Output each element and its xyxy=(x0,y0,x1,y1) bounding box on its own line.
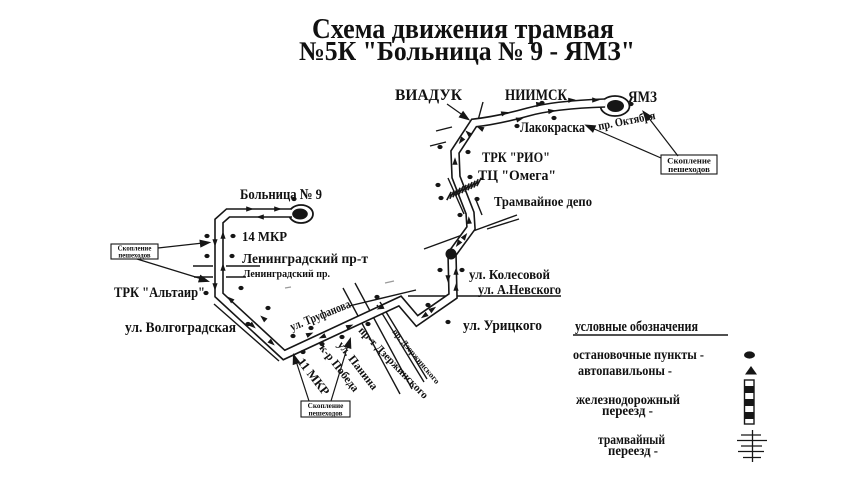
svg-text:пешеходов: пешеходов xyxy=(118,252,151,259)
svg-text:Ленинградский пр-т: Ленинградский пр-т xyxy=(242,252,368,267)
svg-text:условные обозначения: условные обозначения xyxy=(575,319,698,335)
svg-text:остановочные пункты -: остановочные пункты - xyxy=(573,347,704,362)
svg-text:ул. А.Невского: ул. А.Невского xyxy=(478,283,561,298)
svg-text:Ленинградский пр.: Ленинградский пр. xyxy=(243,268,330,280)
svg-text:автопавильоны -: автопавильоны - xyxy=(578,363,672,378)
svg-text:ТЦ "Омега": ТЦ "Омега" xyxy=(478,168,556,184)
svg-text:ЯМЗ: ЯМЗ xyxy=(628,89,657,106)
svg-text:переезд -: переезд - xyxy=(608,443,658,458)
svg-text:пешеходов: пешеходов xyxy=(308,409,342,417)
svg-text:Больница № 9: Больница № 9 xyxy=(240,187,322,203)
svg-text:ул. Урицкого: ул. Урицкого xyxy=(463,318,542,334)
svg-text:ТРК "РИО": ТРК "РИО" xyxy=(482,150,550,166)
svg-text:ул. Волгоградская: ул. Волгоградская xyxy=(125,320,236,336)
svg-text:переезд -: переезд - xyxy=(602,403,653,418)
svg-text:Трамвайное депо: Трамвайное депо xyxy=(494,194,592,209)
svg-text:ул. Колесовой: ул. Колесовой xyxy=(469,268,550,283)
svg-text:ТРК "Альтаир": ТРК "Альтаир" xyxy=(114,285,205,301)
svg-text:Лакокраска: Лакокраска xyxy=(520,120,586,136)
svg-text:ВИАДУК: ВИАДУК xyxy=(395,87,463,104)
svg-text:пешеходов: пешеходов xyxy=(668,164,710,174)
svg-text:№5К "Больница № 9 - ЯМЗ": №5К "Больница № 9 - ЯМЗ" xyxy=(299,36,635,66)
svg-text:НИИМСК: НИИМСК xyxy=(505,87,568,104)
svg-text:14 МКР: 14 МКР xyxy=(242,230,287,245)
